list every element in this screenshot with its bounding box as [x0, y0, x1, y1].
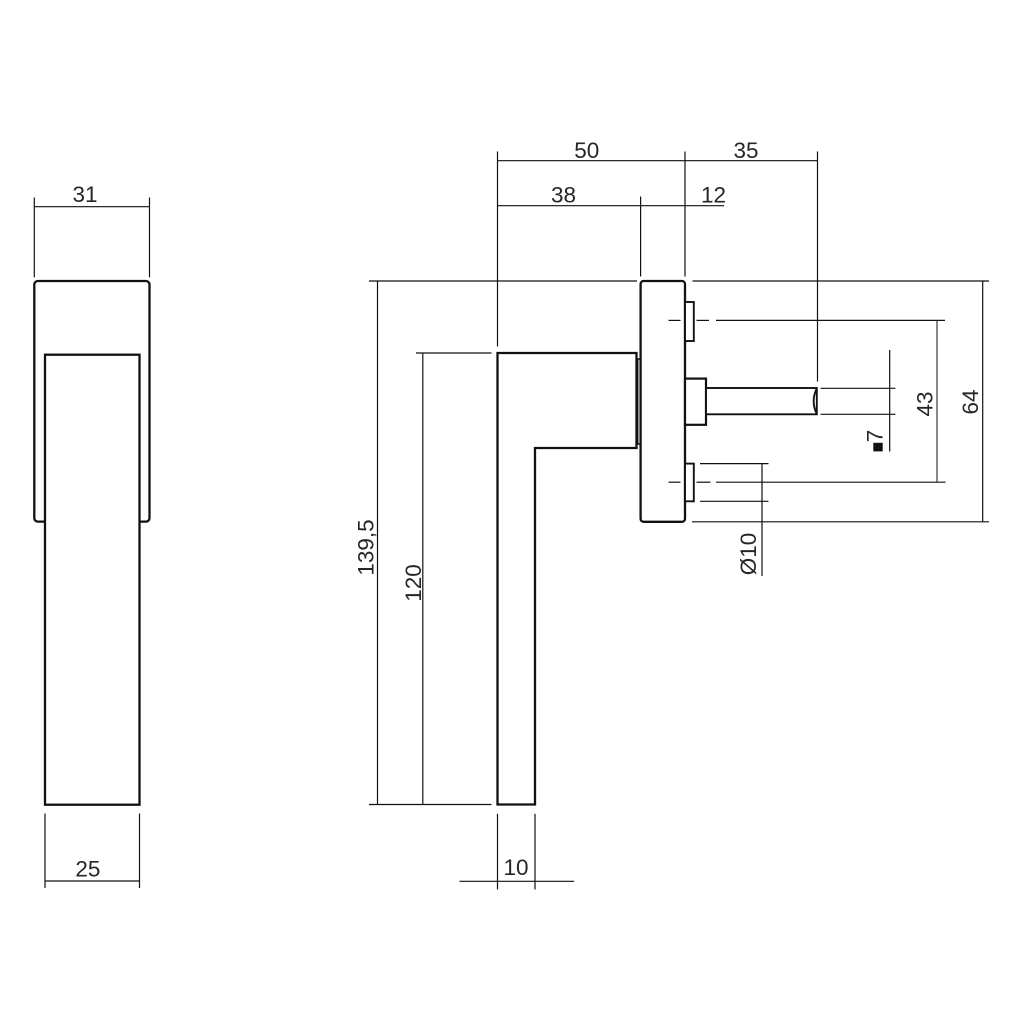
svg-text:12: 12: [701, 182, 726, 207]
svg-text:38: 38: [551, 182, 576, 207]
svg-text:Ø10: Ø10: [736, 533, 761, 576]
svg-text:139,5: 139,5: [354, 519, 379, 575]
svg-text:35: 35: [733, 138, 758, 163]
svg-text:50: 50: [574, 138, 599, 163]
svg-text:64: 64: [958, 389, 983, 414]
svg-text:10: 10: [503, 855, 528, 880]
svg-text:31: 31: [72, 182, 97, 207]
svg-text:7: 7: [863, 430, 888, 443]
svg-text:25: 25: [75, 856, 100, 881]
svg-text:120: 120: [401, 564, 426, 602]
svg-text:43: 43: [913, 391, 938, 416]
